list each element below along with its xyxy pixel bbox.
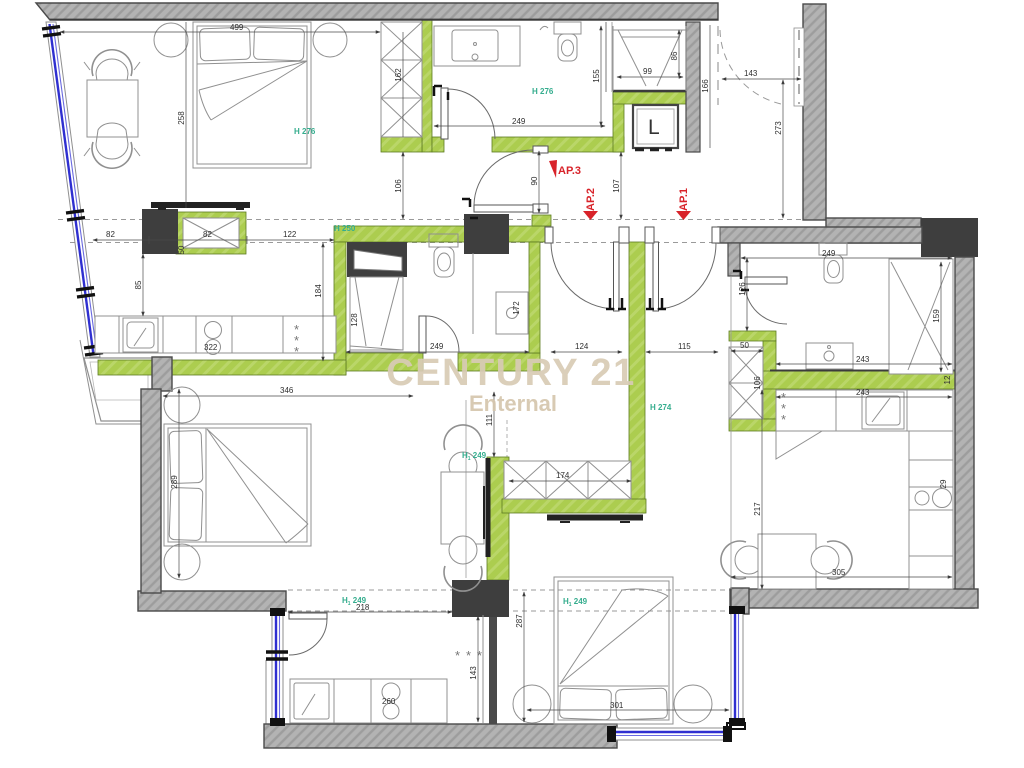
svg-text:155: 155 (592, 69, 601, 83)
svg-text:50: 50 (740, 341, 749, 350)
svg-text:AP.2: AP.2 (585, 188, 597, 211)
svg-text:249: 249 (430, 342, 444, 351)
svg-text:*: * (455, 648, 460, 663)
svg-text:159: 159 (932, 309, 941, 323)
svg-text:172: 172 (512, 301, 521, 315)
svg-text:162: 162 (394, 68, 403, 82)
svg-text:107: 107 (612, 179, 621, 193)
svg-text:Enternal: Enternal (469, 391, 557, 416)
svg-text:106: 106 (394, 179, 403, 193)
svg-text:126: 126 (738, 282, 747, 296)
svg-text:85: 85 (134, 280, 143, 289)
svg-text:H 276: H 276 (532, 87, 554, 96)
svg-text:H 250: H 250 (334, 224, 356, 233)
svg-text:*: * (466, 648, 471, 663)
svg-text:CENTURY 21: CENTURY 21 (386, 352, 635, 394)
svg-text:217: 217 (753, 502, 762, 516)
svg-text:166: 166 (701, 79, 710, 93)
svg-text:29: 29 (939, 479, 948, 488)
svg-text:AP.1: AP.1 (678, 188, 690, 211)
svg-text:322: 322 (204, 343, 218, 352)
svg-text:249: 249 (512, 117, 526, 126)
svg-text:174: 174 (556, 471, 570, 480)
svg-text:143: 143 (744, 69, 758, 78)
svg-text:143: 143 (469, 666, 478, 680)
svg-text:50: 50 (177, 245, 186, 254)
svg-text:106: 106 (753, 376, 762, 390)
svg-text:86: 86 (670, 51, 679, 60)
svg-text:249: 249 (822, 249, 836, 258)
svg-text:243: 243 (856, 355, 870, 364)
svg-text:*: * (781, 412, 786, 427)
svg-text:243: 243 (856, 388, 870, 397)
svg-text:99: 99 (643, 67, 652, 76)
svg-text:115: 115 (678, 342, 691, 351)
svg-text:L: L (648, 116, 660, 139)
svg-text:301: 301 (610, 701, 624, 710)
svg-text:82: 82 (106, 230, 115, 239)
svg-text:12: 12 (943, 375, 952, 384)
svg-text:499: 499 (230, 23, 244, 32)
svg-text:184: 184 (314, 284, 323, 298)
svg-text:90: 90 (530, 176, 539, 185)
svg-text:82: 82 (203, 230, 212, 239)
svg-text:260: 260 (382, 697, 396, 706)
svg-text:287: 287 (515, 614, 524, 628)
svg-text:346: 346 (280, 386, 294, 395)
svg-text:H 276: H 276 (294, 127, 316, 136)
svg-text:128: 128 (350, 313, 359, 327)
svg-text:289: 289 (170, 475, 179, 489)
svg-text:273: 273 (774, 121, 783, 135)
svg-text:AP.3: AP.3 (558, 165, 581, 177)
svg-text:124: 124 (575, 342, 589, 351)
svg-text:*: * (294, 344, 299, 359)
svg-text:122: 122 (283, 230, 297, 239)
svg-text:H 274: H 274 (650, 403, 672, 412)
svg-text:258: 258 (177, 111, 186, 125)
svg-text:305: 305 (832, 568, 846, 577)
